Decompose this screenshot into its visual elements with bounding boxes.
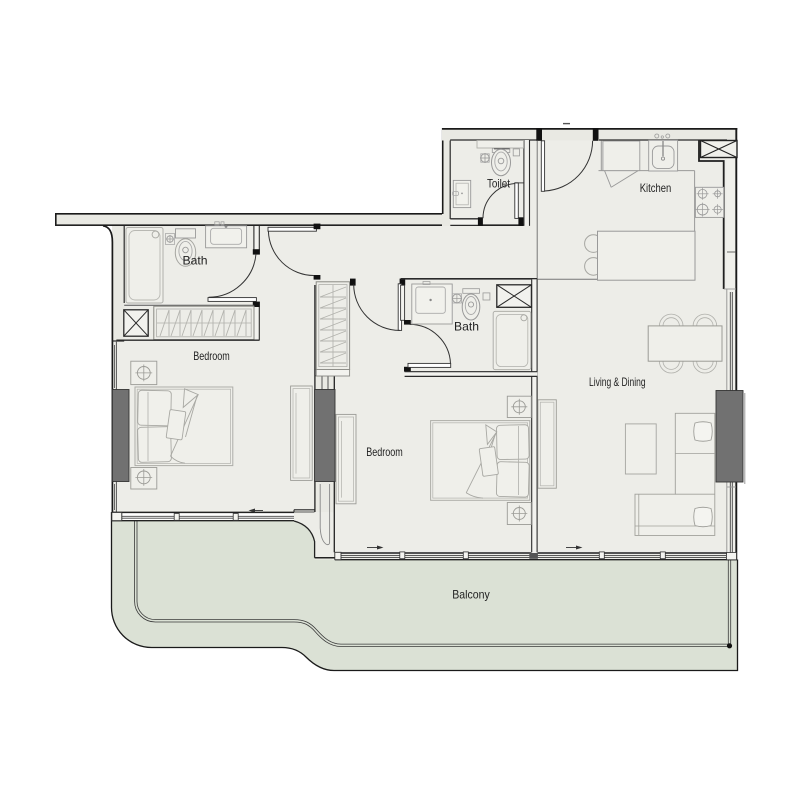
svg-text:Toilet: Toilet [487, 177, 511, 191]
svg-text:Kitchen: Kitchen [640, 181, 672, 195]
svg-text:Living & Dining: Living & Dining [589, 375, 646, 389]
svg-text:Balcony: Balcony [452, 588, 490, 602]
svg-text:Bath: Bath [454, 320, 479, 334]
svg-text:Bath: Bath [183, 254, 208, 268]
svg-text:Bedroom: Bedroom [193, 349, 230, 363]
svg-text:Bedroom: Bedroom [366, 445, 403, 459]
